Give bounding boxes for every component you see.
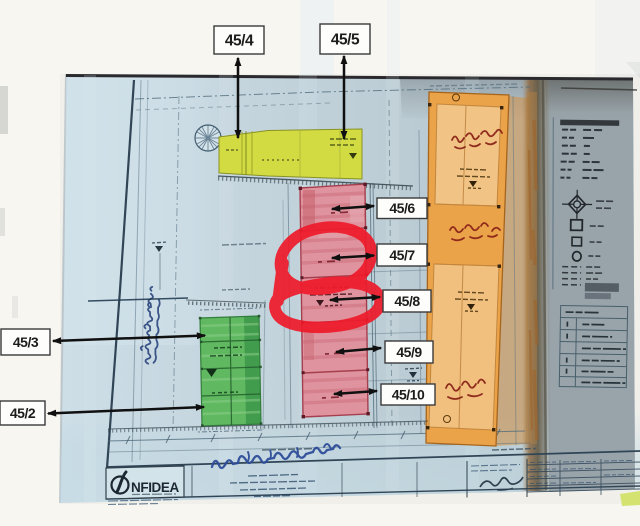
svg-text:45/3: 45/3 — [13, 334, 39, 350]
svg-text:45/10: 45/10 — [392, 387, 425, 403]
svg-text:45/8: 45/8 — [394, 293, 420, 309]
svg-text:45/4: 45/4 — [225, 33, 254, 50]
svg-text:45/7: 45/7 — [389, 247, 415, 263]
svg-text:45/5: 45/5 — [331, 32, 360, 49]
svg-text:45/6: 45/6 — [389, 200, 415, 216]
svg-text:45/2: 45/2 — [10, 405, 36, 421]
svg-text:45/9: 45/9 — [396, 344, 422, 360]
